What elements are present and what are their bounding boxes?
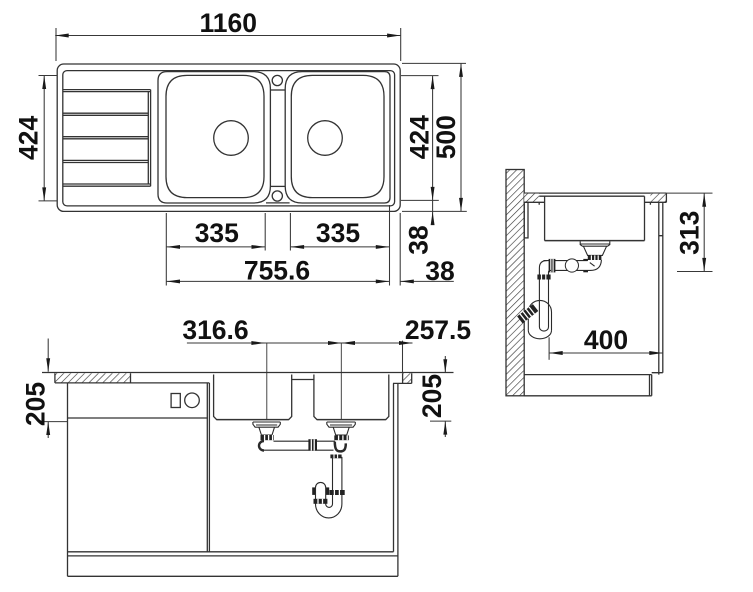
svg-text:424: 424 [14, 116, 44, 160]
svg-text:316.6: 316.6 [182, 315, 248, 345]
svg-text:335: 335 [316, 218, 360, 248]
svg-text:257.5: 257.5 [405, 315, 471, 345]
svg-text:38: 38 [403, 225, 433, 254]
svg-text:313: 313 [674, 211, 704, 255]
svg-text:400: 400 [584, 325, 628, 355]
svg-text:205: 205 [417, 374, 447, 418]
svg-text:424: 424 [405, 115, 435, 159]
svg-text:500: 500 [431, 115, 461, 159]
svg-text:335: 335 [195, 218, 239, 248]
svg-text:205: 205 [21, 382, 51, 426]
svg-text:755.6: 755.6 [244, 256, 310, 286]
svg-text:38: 38 [425, 256, 454, 286]
svg-text:1160: 1160 [199, 8, 257, 38]
